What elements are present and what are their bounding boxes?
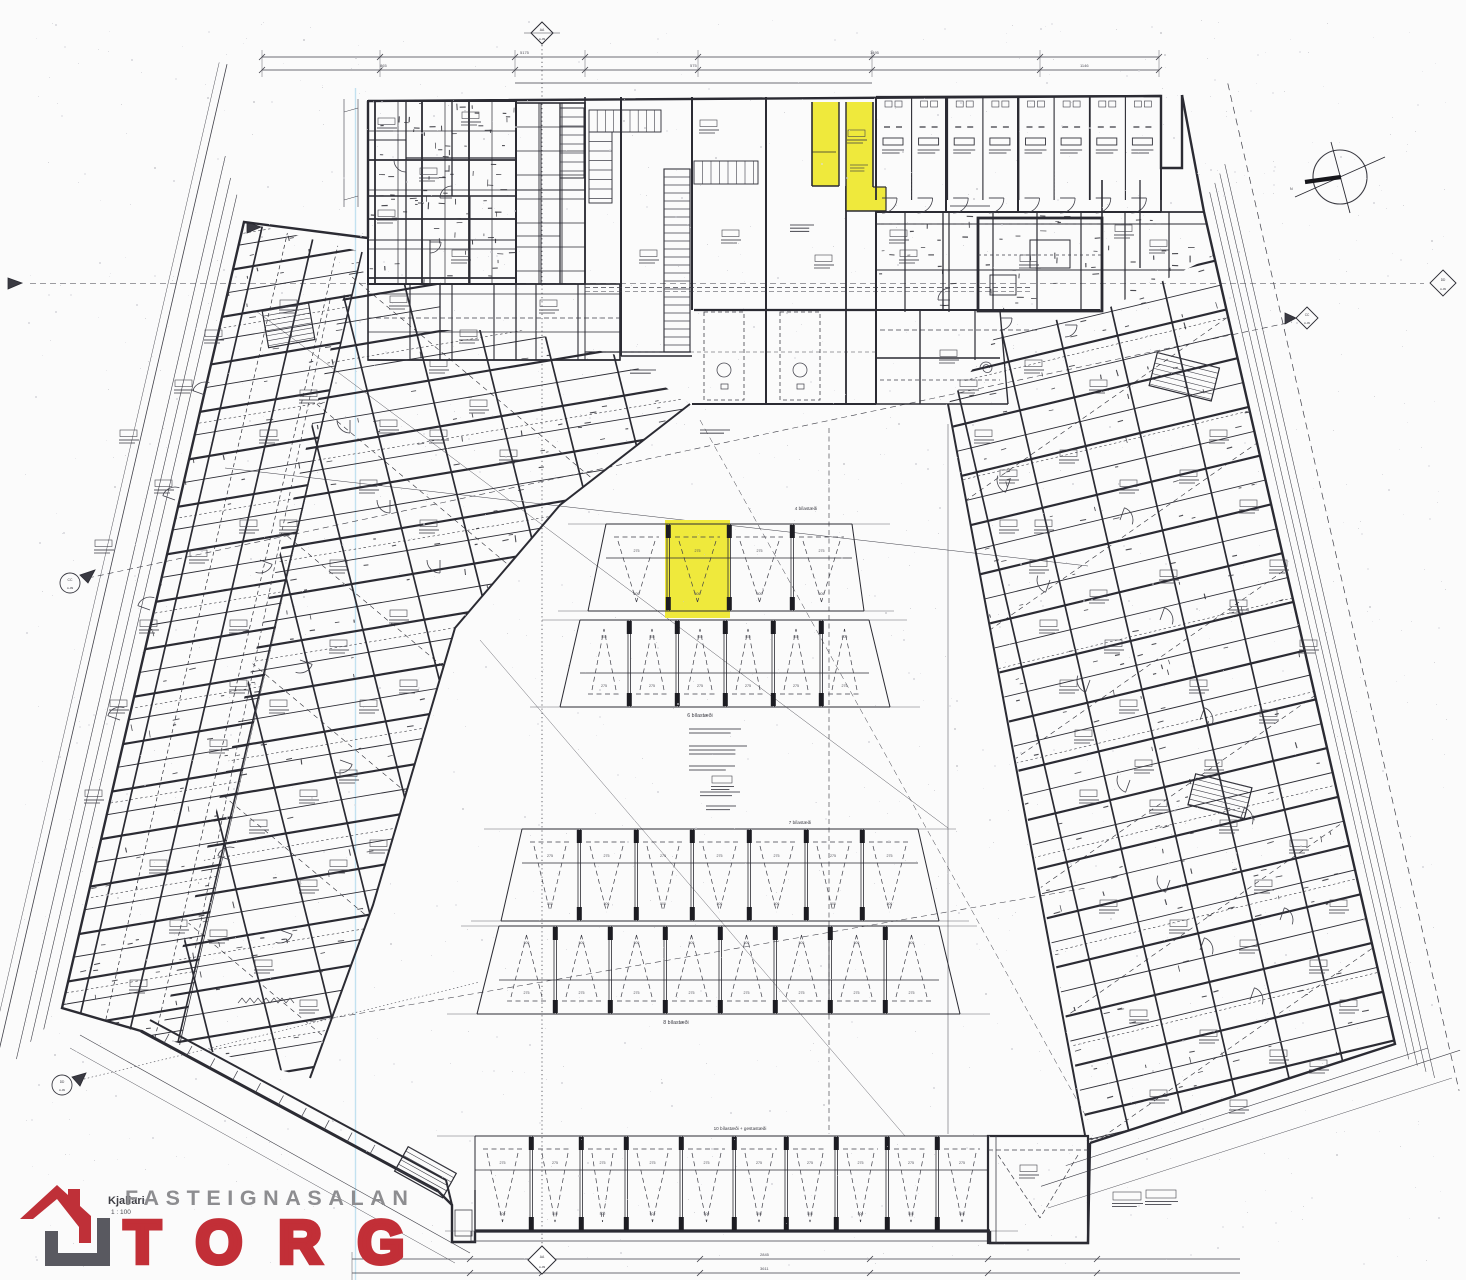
svg-text:500: 500 [500,1212,506,1216]
svg-text:500: 500 [660,902,666,906]
svg-text:275: 275 [579,991,585,995]
svg-text:500: 500 [717,902,723,906]
svg-text:6 bílastæði: 6 bílastæði [687,712,712,719]
svg-text:275: 275 [745,684,751,688]
svg-text:275: 275 [830,854,836,858]
svg-text:275: 275 [660,854,666,858]
svg-text:A-09: A-09 [1440,287,1446,291]
svg-text:275: 275 [959,1161,965,1165]
svg-text:500: 500 [697,635,703,639]
svg-text:500: 500 [524,941,530,945]
svg-text:7 bílastæði: 7 bílastæði [789,819,811,825]
svg-text:275: 275 [842,684,848,688]
svg-text:275: 275 [649,684,655,688]
svg-text:AA: AA [540,1255,545,1259]
svg-text:275: 275 [697,684,703,688]
svg-text:10 bílastæði + gestastæði: 10 bílastæði + gestastæði [714,1125,767,1131]
svg-text:500: 500 [819,592,825,596]
svg-text:5175: 5175 [520,50,530,55]
svg-text:500: 500 [830,902,836,906]
svg-text:275: 275 [552,1161,558,1165]
svg-text:500: 500 [908,1212,914,1216]
svg-text:500: 500 [756,1212,762,1216]
svg-text:275: 275 [547,854,553,858]
svg-text:8 bílastæði: 8 bílastæði [663,1019,688,1026]
svg-text:A-09: A-09 [539,37,546,41]
svg-text:275: 275 [887,854,893,858]
svg-text:1146: 1146 [1080,63,1089,68]
svg-text:275: 275 [757,549,763,553]
svg-text:CC: CC [68,578,73,582]
svg-text:500: 500 [799,941,805,945]
svg-text:275: 275 [799,991,805,995]
svg-text:3611: 3611 [760,1266,769,1271]
svg-text:500: 500 [600,1212,606,1216]
svg-text:500: 500 [909,941,915,945]
svg-text:500: 500 [601,635,607,639]
svg-text:275: 275 [634,991,640,995]
svg-text:1495: 1495 [870,50,880,55]
svg-text:N: N [1290,187,1293,191]
svg-text:500: 500 [634,592,640,596]
svg-text:500: 500 [774,902,780,906]
svg-text:500: 500 [744,941,750,945]
svg-text:4 bílastæði: 4 bílastæði [795,505,817,511]
svg-text:500: 500 [793,635,799,639]
svg-text:275: 275 [908,1161,914,1165]
svg-text:275: 275 [650,1161,656,1165]
svg-text:275: 275 [717,854,723,858]
svg-text:275: 275 [524,991,530,995]
svg-text:275: 275 [601,684,607,688]
svg-text:275: 275 [858,1161,864,1165]
svg-text:275: 275 [909,991,915,995]
svg-text:A-09: A-09 [59,1088,65,1092]
svg-text:275: 275 [695,549,701,553]
svg-text:2845: 2845 [760,1252,770,1257]
svg-text:275: 275 [689,991,695,995]
svg-text:500: 500 [858,1212,864,1216]
svg-text:275: 275 [744,991,750,995]
svg-text:TORG: TORG [124,1209,440,1276]
svg-text:500: 500 [695,592,701,596]
svg-text:500: 500 [704,1212,710,1216]
svg-text:500: 500 [604,902,610,906]
svg-text:865: 865 [380,63,387,68]
svg-text:500: 500 [650,1212,656,1216]
svg-text:DD: DD [60,1080,65,1084]
svg-text:275: 275 [756,1161,762,1165]
svg-text:275: 275 [604,854,610,858]
svg-text:500: 500 [757,592,763,596]
svg-text:500: 500 [887,902,893,906]
svg-text:275: 275 [704,1161,710,1165]
svg-text:500: 500 [689,941,695,945]
svg-text:FASTEIGNASALAN: FASTEIGNASALAN [125,1186,415,1210]
svg-text:500: 500 [959,1212,965,1216]
svg-text:275: 275 [819,549,825,553]
svg-text:500: 500 [579,941,585,945]
svg-text:275: 275 [854,991,860,995]
svg-text:500: 500 [649,635,655,639]
svg-text:500: 500 [745,635,751,639]
svg-text:275: 275 [600,1161,606,1165]
svg-text:500: 500 [634,941,640,945]
svg-text:A-09: A-09 [539,1265,546,1269]
svg-text:A-09: A-09 [67,586,74,590]
svg-text:CC: CC [1305,313,1310,317]
svg-text:500: 500 [842,635,848,639]
svg-text:500: 500 [807,1212,813,1216]
svg-text:DD: DD [1441,278,1446,282]
svg-text:500: 500 [547,902,553,906]
svg-text:A-09: A-09 [1304,321,1310,325]
svg-text:275: 275 [774,854,780,858]
svg-text:275: 275 [807,1161,813,1165]
svg-text:275: 275 [793,684,799,688]
svg-text:AA: AA [540,28,545,32]
svg-text:275: 275 [634,549,640,553]
svg-text:575: 575 [690,63,697,68]
svg-text:275: 275 [500,1161,506,1165]
svg-text:500: 500 [854,941,860,945]
